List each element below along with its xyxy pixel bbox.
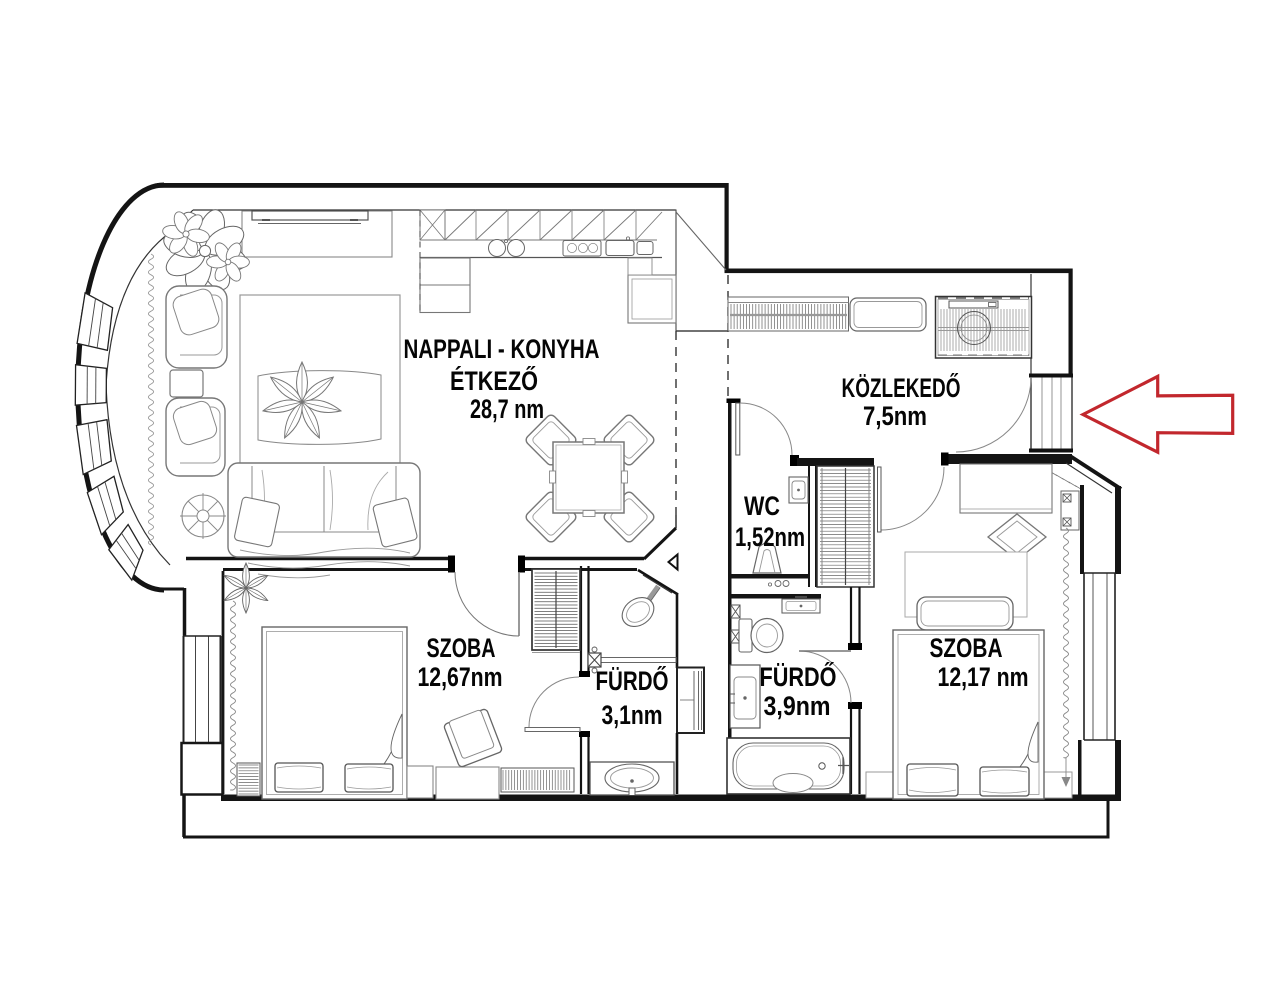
svg-text:1,52nm: 1,52nm — [735, 522, 805, 552]
svg-text:FÜRDŐ: FÜRDŐ — [760, 662, 837, 692]
svg-text:7,5nm: 7,5nm — [863, 401, 927, 431]
svg-text:SZOBA: SZOBA — [930, 633, 1003, 663]
svg-text:WC: WC — [744, 491, 780, 521]
svg-text:28,7 nm: 28,7 nm — [470, 394, 544, 424]
svg-text:KÖZLEKEDŐ: KÖZLEKEDŐ — [842, 373, 961, 403]
svg-text:ÉTKEZŐ: ÉTKEZŐ — [450, 366, 538, 396]
svg-text:NAPPALI - KONYHA: NAPPALI - KONYHA — [404, 334, 600, 364]
svg-text:12,17 nm: 12,17 nm — [938, 662, 1029, 692]
svg-text:3,1nm: 3,1nm — [602, 700, 663, 730]
svg-text:12,67nm: 12,67nm — [418, 662, 503, 692]
svg-text:3,9nm: 3,9nm — [764, 691, 831, 721]
svg-text:FÜRDŐ: FÜRDŐ — [596, 666, 669, 696]
svg-text:SZOBA: SZOBA — [427, 633, 496, 663]
